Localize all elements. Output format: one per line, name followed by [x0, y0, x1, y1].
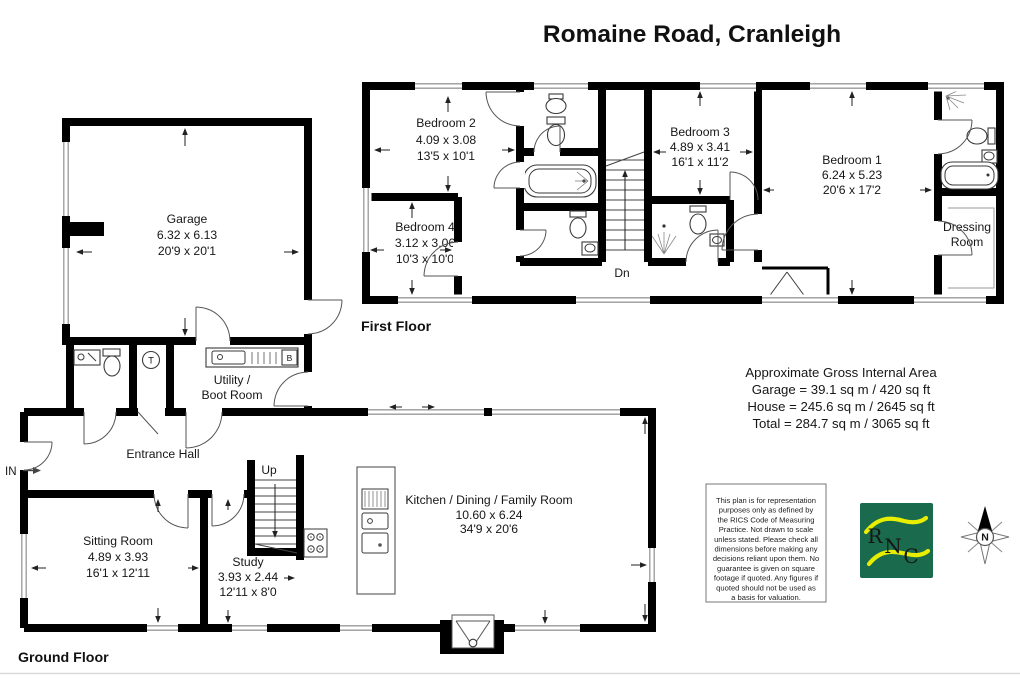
window: [368, 407, 484, 418]
window-end-cap: [228, 624, 232, 632]
disclaimer-line: purposes only as defined by: [719, 506, 814, 515]
tank-label: T: [148, 356, 154, 367]
door-opening: [138, 407, 165, 417]
window: [928, 81, 984, 92]
window-end-cap: [372, 624, 376, 632]
sitting-room-metric: 4.89 x 3.93: [88, 550, 149, 564]
window: [700, 81, 756, 92]
toilet-icon: [547, 117, 565, 124]
door-opening: [515, 92, 525, 126]
door-opening: [753, 214, 763, 250]
page-title: Romaine Road, Cranleigh: [543, 21, 841, 48]
window-end-cap: [411, 82, 415, 90]
window-end-cap: [178, 624, 182, 632]
window-end-cap: [362, 184, 370, 188]
rnc-logo: R N C: [860, 503, 933, 578]
window-end-cap: [488, 408, 492, 416]
toilet-icon: [103, 349, 120, 356]
door-opening: [196, 336, 230, 346]
utility-label-1: Utility /: [214, 373, 251, 387]
toilet-icon: [690, 214, 706, 234]
bedroom2-metric: 4.09 x 3.08: [416, 133, 477, 147]
utility-label-2: Boot Room: [202, 388, 263, 402]
window-end-cap: [143, 624, 147, 632]
door-opening: [19, 442, 29, 470]
window: [647, 548, 658, 582]
floorplan-page: Romaine Road, Cranleigh: [0, 0, 1020, 679]
window: [415, 81, 462, 92]
window-end-cap: [648, 582, 656, 586]
utility-counter: [206, 348, 298, 367]
window: [914, 295, 986, 306]
window-end-cap: [62, 138, 70, 142]
stairs-down-label: Dn: [614, 266, 629, 280]
window-end-cap: [696, 82, 700, 90]
window-end-cap: [984, 82, 988, 90]
window: [232, 623, 267, 634]
window-end-cap: [267, 624, 271, 632]
window-end-cap: [756, 82, 760, 90]
toilet-icon: [570, 218, 586, 238]
door-opening: [212, 489, 244, 499]
window-end-cap: [530, 82, 534, 90]
window-end-cap: [484, 408, 488, 416]
door-opening: [534, 147, 560, 157]
window-end-cap: [838, 296, 842, 304]
window: [534, 81, 588, 92]
window: [492, 407, 620, 418]
bedroom1-imperial: 20'6 x 17'2: [823, 183, 881, 197]
study-imperial: 12'11 x 8'0: [219, 585, 277, 599]
bath-drain: [987, 174, 990, 177]
logo-letter-n: N: [884, 534, 902, 558]
window: [398, 295, 472, 306]
window: [61, 248, 72, 324]
bedroom2-imperial: 13'5 x 10'1: [417, 149, 475, 163]
disclaimer-line: Practice. Not drawn to scale: [719, 525, 814, 534]
window-end-cap: [620, 408, 624, 416]
dressing-room-label-1: Dressing: [943, 220, 991, 234]
entrance-hall-label: Entrance Hall: [126, 447, 199, 461]
door-opening: [453, 242, 463, 276]
garage-metric: 6.32 x 6.13: [157, 228, 218, 242]
bedroom3-imperial: 16'1 x 11'2: [671, 155, 729, 169]
garage-name: Garage: [167, 212, 208, 226]
kitchen-metric: 10.60 x 6.24: [455, 508, 522, 522]
disclaimer-box: This plan is for representation purposes…: [706, 484, 826, 602]
window-end-cap: [362, 252, 370, 256]
door-opening: [933, 221, 943, 255]
sink-icon: [546, 99, 566, 114]
window: [61, 142, 72, 216]
bedroom2-name: Bedroom 2: [416, 116, 476, 130]
bedroom3-name: Bedroom 3: [670, 125, 730, 139]
bedroom4-name: Bedroom 4: [395, 220, 455, 234]
first-floor-label: First Floor: [361, 319, 432, 335]
door-opening: [515, 230, 525, 256]
door-opening: [303, 372, 313, 406]
window-end-cap: [648, 544, 656, 548]
bedroom4-imperial: 10'3 x 10'0: [396, 252, 454, 266]
boiler-label: B: [287, 353, 293, 363]
area-heading: Approximate Gross Internal Area: [745, 365, 937, 380]
window-end-cap: [364, 408, 368, 416]
window: [361, 188, 372, 252]
disclaimer-line: decisions reliant upon them. No: [713, 554, 819, 563]
door-opening: [933, 120, 943, 154]
stairs-up-label: Up: [261, 463, 277, 477]
window-end-cap: [924, 82, 928, 90]
disclaimer-line: dimensions before making any: [715, 545, 818, 554]
toilet-icon: [104, 356, 120, 376]
window-end-cap: [986, 296, 990, 304]
garage-wall-stub: [62, 222, 104, 236]
window-end-cap: [650, 296, 654, 304]
sitting-room-name: Sitting Room: [83, 534, 153, 548]
door-opening: [303, 300, 313, 334]
disclaimer-line: a basis for valuation.: [731, 593, 801, 602]
window-end-cap: [806, 82, 810, 90]
disclaimer-line: footage if quoted. Any figures if: [714, 574, 819, 583]
garage-imperial: 20'9 x 20'1: [158, 244, 216, 258]
window: [810, 81, 866, 92]
window: [576, 295, 650, 306]
ground-floor-label: Ground Floor: [18, 650, 109, 666]
window-end-cap: [336, 624, 340, 632]
kitchen-name: Kitchen / Dining / Family Room: [405, 493, 572, 507]
window-end-cap: [62, 244, 70, 248]
disclaimer-line: quoted should not be used as: [716, 583, 816, 592]
entrance-in-label: IN: [5, 466, 17, 478]
disclaimer-line: This plan is for representation: [716, 496, 816, 505]
compass-north-label: N: [981, 532, 989, 544]
bedroom1-metric: 6.24 x 5.23: [822, 168, 883, 182]
window-end-cap: [20, 598, 28, 602]
disclaimer-line: the RICS Code of Measuring: [717, 515, 814, 524]
study-name: Study: [232, 555, 264, 569]
window-end-cap: [472, 296, 476, 304]
disclaimer-line: unless stated. Please check all: [714, 535, 818, 544]
sitting-room-imperial: 16'1 x 12'11: [86, 566, 150, 580]
area-house: House = 245.6 sq m / 2645 sq ft: [747, 399, 935, 414]
window: [515, 623, 580, 634]
window-end-cap: [910, 296, 914, 304]
window: [19, 534, 30, 598]
kitchen-island: [357, 467, 395, 594]
bathroom-top-middle: [546, 94, 566, 146]
logo-letter-r: R: [867, 524, 883, 548]
window-end-cap: [572, 296, 576, 304]
kitchen-imperial: 34'9 x 20'6: [460, 522, 518, 536]
window-end-cap: [462, 82, 466, 90]
window-end-cap: [394, 296, 398, 304]
toilet-icon: [570, 211, 586, 217]
window-end-cap: [758, 296, 762, 304]
door-opening: [154, 489, 188, 499]
window-end-cap: [62, 216, 70, 220]
shower-head: [662, 224, 665, 227]
window-end-cap: [588, 82, 592, 90]
window-end-cap: [866, 82, 870, 90]
window: [340, 623, 372, 634]
window-end-cap: [511, 624, 515, 632]
window-end-cap: [20, 530, 28, 534]
toilet-icon: [988, 128, 995, 144]
bathroom-middle: [524, 165, 596, 197]
disclaimer-line: guarantee is given on square: [717, 564, 815, 573]
study-metric: 3.93 x 2.44: [218, 570, 279, 584]
area-total: Total = 284.7 sq m / 3065 sq ft: [752, 416, 929, 431]
door-opening: [84, 407, 116, 417]
window: [147, 623, 178, 634]
logo-letter-c: C: [903, 544, 918, 568]
fireplace: [440, 615, 504, 654]
window-end-cap: [580, 624, 584, 632]
toilet-icon: [690, 206, 706, 212]
area-garage: Garage = 39.1 sq m / 420 sq ft: [752, 382, 931, 397]
door-opening: [686, 257, 718, 267]
window-end-cap: [62, 324, 70, 328]
window: [762, 295, 838, 306]
bedroom1-name: Bedroom 1: [822, 153, 882, 167]
floorplan-canvas: Romaine Road, Cranleigh: [0, 0, 1020, 679]
door-opening: [186, 407, 222, 417]
bedroom3-metric: 4.89 x 3.41: [670, 140, 731, 154]
door-opening: [515, 162, 525, 188]
